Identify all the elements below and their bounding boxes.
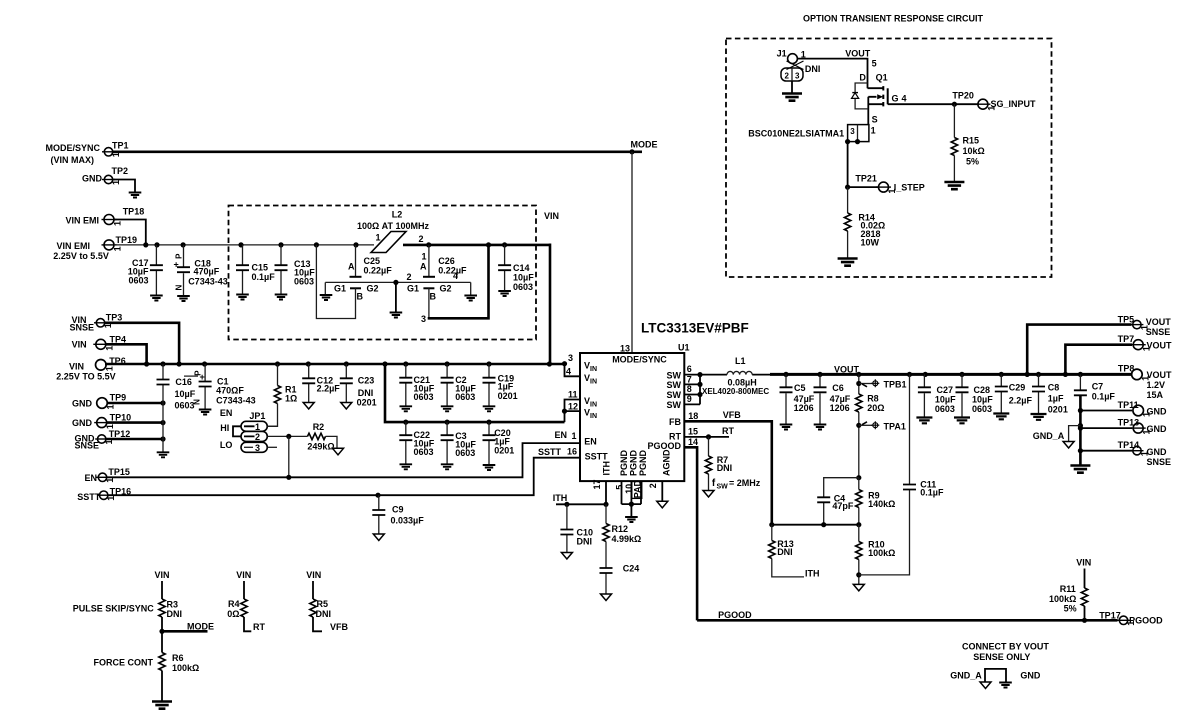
- svg-text:1: 1: [375, 233, 380, 243]
- svg-text:GND_A: GND_A: [950, 671, 982, 681]
- svg-text:10µF: 10µF: [972, 395, 993, 405]
- svg-text:C5: C5: [794, 383, 806, 393]
- svg-text:SW: SW: [667, 370, 682, 380]
- svg-text:TP5: TP5: [1118, 314, 1135, 324]
- svg-text:LO: LO: [220, 440, 233, 450]
- svg-text:TP12: TP12: [109, 429, 131, 439]
- svg-text:L2: L2: [392, 210, 403, 220]
- svg-text:PGOOD: PGOOD: [1129, 615, 1163, 625]
- svg-text:2: 2: [785, 71, 790, 80]
- svg-text:PULSE SKIP/SYNC: PULSE SKIP/SYNC: [73, 604, 155, 614]
- svg-text:G1: G1: [407, 283, 419, 293]
- svg-text:4: 4: [566, 367, 571, 377]
- svg-text:1.2V: 1.2V: [1147, 380, 1166, 390]
- svg-text:C29: C29: [1009, 382, 1026, 392]
- svg-text:2.25V to 5.5V: 2.25V to 5.5V: [53, 251, 109, 261]
- svg-text:SW: SW: [717, 483, 729, 490]
- svg-text:G2: G2: [440, 283, 452, 293]
- svg-text:C9: C9: [392, 504, 404, 514]
- svg-text:VIN: VIN: [155, 570, 170, 580]
- svg-text:PGOOD: PGOOD: [718, 610, 752, 620]
- svg-text:10µF: 10µF: [935, 395, 956, 405]
- svg-text:G: G: [892, 93, 899, 103]
- svg-text:J1: J1: [777, 48, 787, 58]
- svg-text:17: 17: [592, 479, 602, 489]
- svg-text:TP7: TP7: [1118, 334, 1135, 344]
- svg-text:= 2MHz: = 2MHz: [729, 478, 761, 488]
- svg-text:4: 4: [902, 93, 907, 103]
- svg-text:EN: EN: [554, 430, 567, 440]
- svg-text:100Ω AT 100MHz: 100Ω AT 100MHz: [357, 221, 430, 231]
- svg-text:3: 3: [568, 353, 573, 363]
- svg-text:C26: C26: [438, 256, 455, 266]
- svg-text:SW: SW: [667, 390, 682, 400]
- svg-text:PGND: PGND: [619, 449, 629, 476]
- svg-text:C24: C24: [623, 564, 640, 574]
- svg-text:2: 2: [407, 272, 412, 282]
- svg-text:0603: 0603: [414, 392, 434, 402]
- svg-text:GND: GND: [72, 399, 93, 409]
- svg-text:L1: L1: [735, 356, 746, 366]
- svg-text:15A: 15A: [1147, 390, 1164, 400]
- svg-text:VFB: VFB: [330, 622, 349, 632]
- svg-text:3: 3: [850, 127, 855, 136]
- svg-text:TP14: TP14: [1118, 440, 1140, 450]
- svg-text:9: 9: [687, 394, 692, 404]
- svg-text:FB: FB: [669, 417, 681, 427]
- svg-text:VIN: VIN: [1076, 558, 1091, 568]
- svg-text:C28: C28: [974, 385, 991, 395]
- svg-text:+: +: [174, 259, 179, 269]
- svg-text:0201: 0201: [357, 397, 377, 407]
- svg-text:PGND: PGND: [638, 449, 648, 476]
- svg-text:VOUT: VOUT: [1146, 317, 1172, 327]
- svg-text:EN: EN: [220, 408, 233, 418]
- svg-text:0603: 0603: [455, 392, 475, 402]
- svg-text:SENSE ONLY: SENSE ONLY: [973, 652, 1030, 662]
- svg-text:C8: C8: [1048, 382, 1060, 392]
- svg-text:TP10: TP10: [110, 413, 132, 423]
- svg-text:VOUT: VOUT: [845, 48, 871, 58]
- svg-text:R6: R6: [172, 653, 184, 663]
- svg-text:0Ω: 0Ω: [227, 609, 239, 619]
- svg-text:2: 2: [648, 483, 658, 488]
- svg-text:TP19: TP19: [116, 235, 138, 245]
- svg-text:SSTT: SSTT: [585, 452, 609, 462]
- svg-text:10kΩ: 10kΩ: [963, 146, 985, 156]
- svg-text:TPB1: TPB1: [884, 380, 907, 390]
- svg-text:JP1: JP1: [249, 411, 265, 421]
- svg-text:VOUT: VOUT: [1147, 370, 1173, 380]
- svg-text:SSTT: SSTT: [538, 447, 562, 457]
- svg-text:15: 15: [688, 426, 698, 436]
- svg-text:470µF: 470µF: [194, 266, 220, 276]
- svg-text:R8: R8: [867, 393, 879, 403]
- svg-text:PGND: PGND: [629, 449, 639, 476]
- svg-text:AGND: AGND: [662, 449, 672, 476]
- svg-text:2: 2: [419, 234, 424, 244]
- svg-text:C23: C23: [358, 375, 375, 385]
- svg-text:GND_A: GND_A: [1033, 431, 1065, 441]
- svg-text:D: D: [859, 72, 866, 82]
- svg-text:470ΩF: 470ΩF: [216, 385, 244, 395]
- svg-text:3: 3: [255, 443, 260, 453]
- svg-text:249kΩ: 249kΩ: [307, 441, 334, 451]
- svg-text:0603: 0603: [455, 448, 475, 458]
- svg-text:SW: SW: [667, 380, 682, 390]
- svg-text:VIN: VIN: [544, 211, 559, 221]
- svg-text:7: 7: [687, 374, 692, 384]
- svg-text:1: 1: [421, 252, 426, 262]
- svg-text:G2: G2: [367, 283, 379, 293]
- svg-text:XEL4020-800MEC: XEL4020-800MEC: [702, 387, 769, 396]
- svg-text:SNSE: SNSE: [1147, 457, 1172, 467]
- svg-text:0603: 0603: [513, 282, 533, 292]
- svg-text:0603: 0603: [128, 275, 148, 285]
- svg-text:1Ω: 1Ω: [285, 394, 297, 404]
- svg-text:0.033µF: 0.033µF: [391, 515, 425, 525]
- svg-text:2.2µF: 2.2µF: [1009, 395, 1033, 405]
- svg-text:3: 3: [421, 314, 426, 324]
- svg-text:R2: R2: [313, 422, 325, 432]
- svg-text:5: 5: [872, 58, 877, 68]
- svg-text:0201: 0201: [498, 391, 518, 401]
- svg-text:MODE/SYNC: MODE/SYNC: [612, 355, 667, 365]
- svg-text:CONNECT BY VOUT: CONNECT BY VOUT: [962, 642, 1049, 652]
- svg-text:ITH: ITH: [602, 461, 612, 476]
- svg-text:0603: 0603: [935, 404, 955, 414]
- svg-text:5%: 5%: [1064, 604, 1077, 614]
- svg-text:C14: C14: [513, 263, 530, 273]
- svg-text:FORCE CONT: FORCE CONT: [94, 658, 154, 668]
- svg-text:C15: C15: [252, 263, 269, 273]
- svg-text:VOUT: VOUT: [834, 364, 860, 374]
- svg-text:ITH: ITH: [553, 493, 568, 503]
- svg-text:SNSE: SNSE: [1146, 327, 1171, 337]
- svg-text:0.1µF: 0.1µF: [252, 272, 276, 282]
- svg-text:TP15: TP15: [108, 467, 130, 477]
- svg-text:R15: R15: [963, 135, 980, 145]
- svg-text:5%: 5%: [966, 156, 979, 166]
- svg-text:GND: GND: [1147, 406, 1168, 416]
- svg-text:R12: R12: [612, 524, 629, 534]
- svg-text:2: 2: [255, 432, 260, 442]
- svg-text:RT: RT: [253, 622, 265, 632]
- svg-text:0201: 0201: [494, 445, 514, 455]
- svg-text:12: 12: [568, 401, 578, 411]
- svg-text:C7343-43: C7343-43: [216, 395, 256, 405]
- svg-text:TP13: TP13: [1118, 417, 1140, 427]
- svg-text:TP9: TP9: [110, 393, 127, 403]
- svg-text:DNI: DNI: [167, 609, 183, 619]
- svg-text:VIN: VIN: [306, 570, 321, 580]
- svg-text:0201: 0201: [1048, 405, 1068, 415]
- svg-text:0.22µF: 0.22µF: [364, 266, 393, 276]
- svg-text:VIN: VIN: [72, 340, 87, 350]
- svg-text:0603: 0603: [294, 276, 314, 286]
- svg-text:10µF: 10µF: [175, 389, 196, 399]
- svg-text:0603: 0603: [414, 447, 434, 457]
- svg-text:EN: EN: [584, 436, 597, 446]
- svg-text:1: 1: [255, 422, 260, 432]
- svg-text:U1: U1: [678, 342, 690, 352]
- svg-text:0.1µF: 0.1µF: [920, 487, 944, 497]
- svg-text:SG_INPUT: SG_INPUT: [991, 99, 1037, 109]
- svg-text:R5: R5: [317, 599, 329, 609]
- svg-text:P: P: [193, 370, 202, 376]
- svg-text:SSTT: SSTT: [77, 492, 101, 502]
- svg-text:C7: C7: [1092, 381, 1104, 391]
- svg-text:2.25V TO 5.5V: 2.25V TO 5.5V: [56, 372, 115, 382]
- svg-text:4: 4: [453, 271, 458, 281]
- svg-text:VFB: VFB: [723, 410, 742, 420]
- svg-text:GND: GND: [1147, 424, 1168, 434]
- svg-text:EN: EN: [84, 473, 97, 483]
- svg-text:N: N: [193, 399, 202, 405]
- svg-text:PGOOD: PGOOD: [647, 441, 681, 451]
- svg-text:TP1: TP1: [112, 140, 129, 150]
- svg-text:ITH: ITH: [805, 569, 820, 579]
- svg-text:(VIN MAX): (VIN MAX): [51, 155, 95, 165]
- svg-text:100kΩ: 100kΩ: [172, 663, 199, 673]
- svg-text:VIN: VIN: [236, 570, 251, 580]
- svg-text:N: N: [175, 285, 184, 291]
- svg-text:TP4: TP4: [110, 334, 127, 344]
- svg-text:S: S: [872, 115, 878, 125]
- svg-text:Q1: Q1: [876, 72, 888, 82]
- svg-text:DNI: DNI: [358, 388, 374, 398]
- svg-text:C25: C25: [364, 256, 381, 266]
- svg-text:P: P: [174, 253, 183, 259]
- svg-text:1: 1: [571, 431, 576, 441]
- svg-text:A: A: [420, 262, 427, 272]
- svg-text:6: 6: [687, 364, 692, 374]
- svg-text:140kΩ: 140kΩ: [868, 499, 895, 509]
- svg-text:DNI: DNI: [805, 64, 821, 74]
- svg-text:3: 3: [795, 71, 800, 80]
- svg-text:10µF: 10µF: [513, 273, 534, 283]
- svg-text:BSC010NE2LSIATMA1: BSC010NE2LSIATMA1: [748, 129, 844, 139]
- svg-text:SW: SW: [667, 400, 682, 410]
- svg-text:4.99kΩ: 4.99kΩ: [612, 534, 642, 544]
- svg-text:1206: 1206: [830, 403, 850, 413]
- svg-text:VOUT: VOUT: [1147, 340, 1173, 350]
- svg-text:C7343-43: C7343-43: [188, 276, 228, 286]
- svg-text:GND: GND: [72, 418, 93, 428]
- svg-text:B: B: [430, 292, 437, 302]
- svg-text:VIN EMI: VIN EMI: [56, 241, 90, 251]
- svg-text:DNI: DNI: [316, 609, 332, 619]
- svg-text:14: 14: [688, 437, 698, 447]
- svg-text:DNI: DNI: [777, 547, 793, 557]
- svg-text:C16: C16: [175, 377, 192, 387]
- svg-text:11: 11: [568, 390, 578, 400]
- svg-text:R11: R11: [1060, 584, 1076, 594]
- svg-text:TP3: TP3: [106, 312, 123, 322]
- svg-text:A: A: [348, 262, 355, 272]
- svg-text:I_STEP: I_STEP: [894, 182, 925, 192]
- svg-text:18: 18: [688, 411, 698, 421]
- svg-text:8: 8: [687, 384, 692, 394]
- svg-text:0.08µH: 0.08µH: [728, 377, 757, 387]
- svg-text:GND: GND: [82, 174, 103, 184]
- svg-text:100kΩ: 100kΩ: [868, 548, 895, 558]
- svg-text:TP2: TP2: [112, 166, 129, 176]
- svg-text:DNI: DNI: [717, 463, 733, 473]
- svg-text:VIN: VIN: [69, 362, 84, 372]
- svg-text:DNI: DNI: [577, 537, 593, 547]
- svg-text:OPTION TRANSIENT RESPONSE CIRC: OPTION TRANSIENT RESPONSE CIRCUIT: [803, 14, 984, 24]
- svg-text:MODE: MODE: [187, 622, 214, 632]
- svg-text:TP18: TP18: [123, 207, 145, 217]
- svg-text:TP8: TP8: [1118, 363, 1135, 373]
- svg-text:B: B: [357, 292, 364, 302]
- svg-text:100kΩ: 100kΩ: [1049, 594, 1076, 604]
- svg-text:20Ω: 20Ω: [867, 403, 884, 413]
- svg-text:10W: 10W: [861, 238, 880, 248]
- svg-text:0603: 0603: [972, 404, 992, 414]
- svg-text:RT: RT: [669, 431, 681, 441]
- svg-text:1µF: 1µF: [1048, 394, 1064, 404]
- svg-text:MODE/SYNC: MODE/SYNC: [45, 143, 100, 153]
- svg-text:C6: C6: [832, 383, 844, 393]
- svg-text:13: 13: [620, 343, 630, 353]
- svg-text:GND: GND: [1147, 447, 1168, 457]
- svg-text:MODE: MODE: [631, 140, 658, 150]
- svg-text:TPA1: TPA1: [884, 421, 906, 431]
- svg-text:C27: C27: [937, 385, 954, 395]
- svg-text:TP20: TP20: [952, 91, 974, 101]
- svg-text:R4: R4: [228, 599, 240, 609]
- svg-text:1206: 1206: [794, 403, 814, 413]
- svg-text:1: 1: [871, 125, 876, 135]
- svg-text:TP11: TP11: [1118, 400, 1139, 410]
- svg-text:16: 16: [567, 447, 577, 457]
- svg-text:0.1µF: 0.1µF: [1092, 391, 1116, 401]
- svg-text:G1: G1: [334, 283, 346, 293]
- svg-text:VIN EMI: VIN EMI: [65, 215, 99, 225]
- svg-text:SNSE: SNSE: [74, 441, 99, 451]
- svg-text:TP21: TP21: [855, 173, 877, 183]
- svg-text:SNSE: SNSE: [69, 323, 94, 333]
- svg-text:GND: GND: [1020, 671, 1041, 681]
- svg-text:47pF: 47pF: [832, 501, 854, 511]
- svg-text:2.2µF: 2.2µF: [317, 384, 341, 394]
- svg-text:HI: HI: [220, 423, 229, 433]
- svg-text:TP17: TP17: [1099, 611, 1121, 621]
- svg-text:LTC3313EV#PBF: LTC3313EV#PBF: [641, 321, 749, 336]
- svg-text:RT: RT: [722, 426, 734, 436]
